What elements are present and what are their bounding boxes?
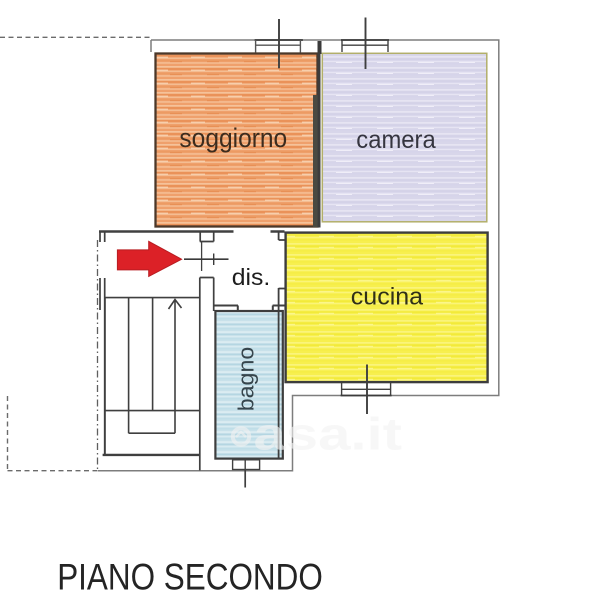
svg-text:asa.it: asa.it: [254, 409, 403, 460]
svg-text:PIANO SECONDO: PIANO SECONDO: [57, 555, 323, 597]
svg-text:camera: camera: [356, 126, 435, 154]
svg-text:bagno: bagno: [234, 347, 259, 412]
svg-text:cucina: cucina: [351, 283, 424, 310]
svg-text:soggiorno: soggiorno: [179, 123, 287, 153]
svg-text:dis.: dis.: [232, 264, 270, 290]
